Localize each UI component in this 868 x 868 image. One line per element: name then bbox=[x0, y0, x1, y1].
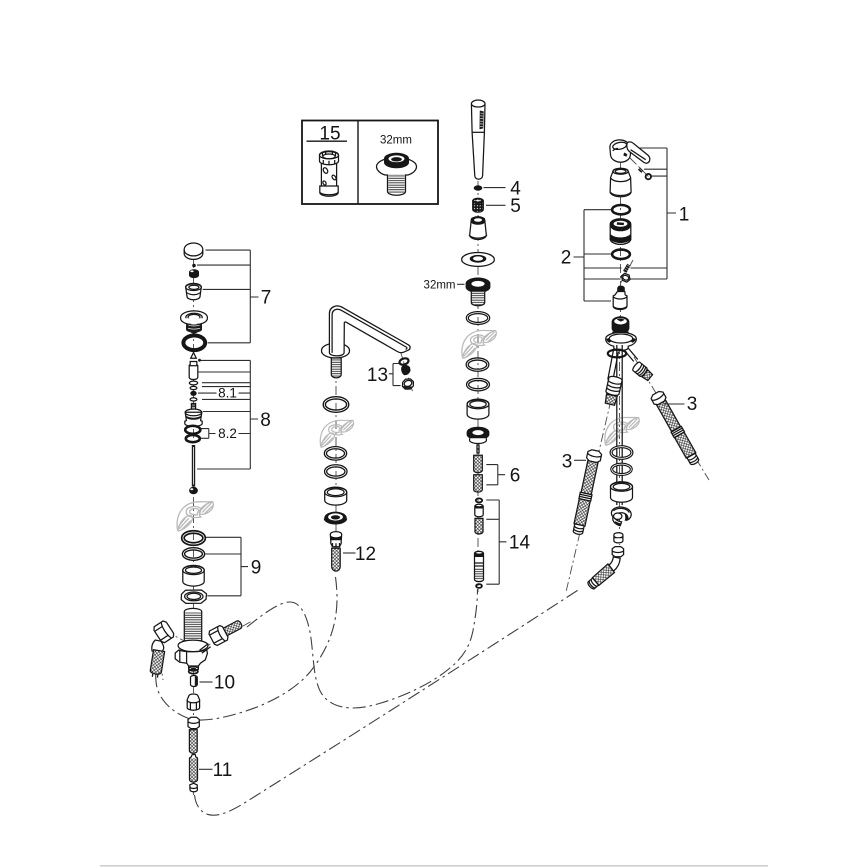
svg-text:14: 14 bbox=[509, 533, 531, 554]
svg-text:32mm: 32mm bbox=[424, 279, 456, 291]
svg-text:8.2: 8.2 bbox=[218, 426, 237, 441]
svg-text:3: 3 bbox=[562, 451, 573, 472]
svg-text:3: 3 bbox=[687, 394, 698, 415]
svg-text:2: 2 bbox=[561, 248, 572, 269]
svg-text:1: 1 bbox=[679, 205, 690, 226]
svg-text:12: 12 bbox=[355, 544, 376, 565]
svg-text:10: 10 bbox=[214, 673, 235, 694]
svg-text:6: 6 bbox=[510, 466, 521, 487]
svg-text:13: 13 bbox=[367, 365, 388, 386]
svg-text:11: 11 bbox=[213, 760, 233, 781]
svg-text:8.1: 8.1 bbox=[218, 386, 237, 401]
svg-text:7: 7 bbox=[261, 288, 272, 309]
svg-text:9: 9 bbox=[251, 558, 262, 579]
svg-text:32mm: 32mm bbox=[380, 135, 412, 147]
svg-text:5: 5 bbox=[510, 196, 521, 217]
svg-text:8: 8 bbox=[260, 410, 271, 431]
